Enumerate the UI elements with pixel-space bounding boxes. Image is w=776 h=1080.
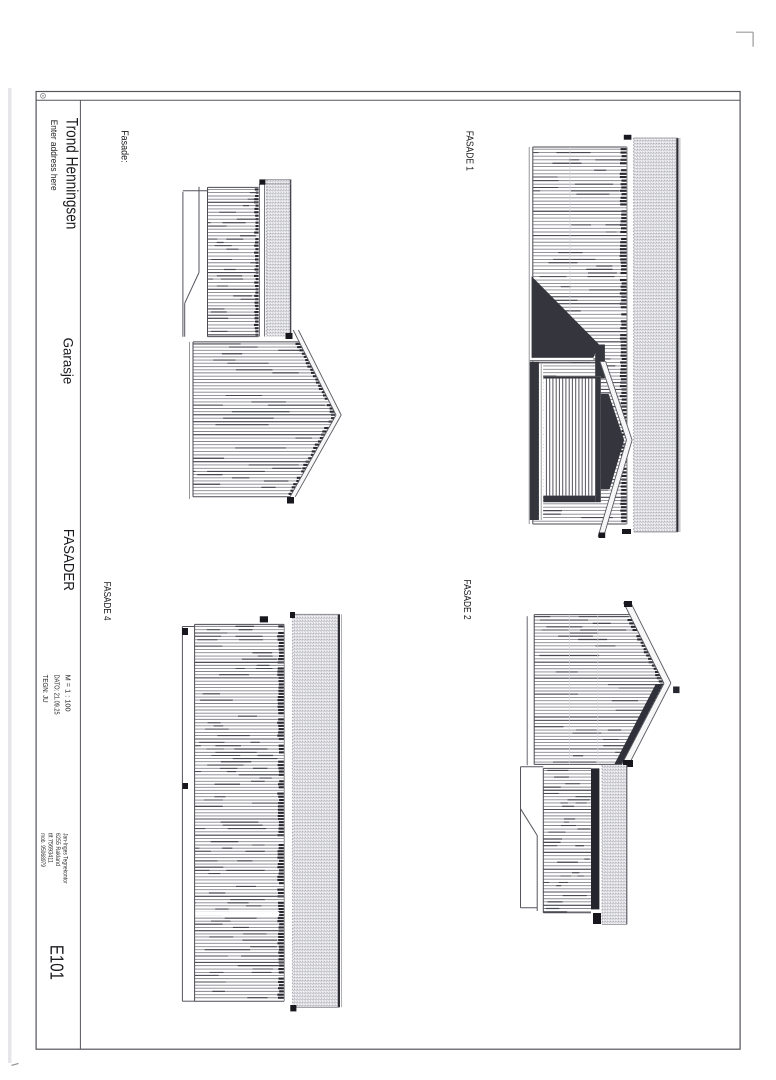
svg-text:Fasade:: Fasade: <box>119 130 130 163</box>
svg-text:mob. 95068979: mob. 95068979 <box>39 833 46 867</box>
svg-text:tlf.75693411: tlf.75693411 <box>46 833 53 863</box>
svg-text:FASADER: FASADER <box>60 529 77 591</box>
svg-text:FASADE 1: FASADE 1 <box>464 131 476 171</box>
svg-text:M = 1 : 100: M = 1 : 100 <box>64 675 73 712</box>
svg-text:E101: E101 <box>46 945 67 980</box>
svg-text:Trond Henningsen: Trond Henningsen <box>63 118 81 230</box>
svg-text:6255 Rakland: 6255 Rakland <box>54 833 61 866</box>
svg-text:Enter address here: Enter address here <box>48 120 59 191</box>
svg-text:FASADE 4: FASADE 4 <box>101 582 113 621</box>
svg-text:DATO: 21.09.25: DATO: 21.09.25 <box>52 675 61 715</box>
svg-text:Garasje: Garasje <box>60 338 76 385</box>
svg-text:TEGN: JU: TEGN: JU <box>41 675 50 703</box>
svg-text:Jan-Inges Tegnekontor: Jan-Inges Tegnekontor <box>61 833 68 884</box>
svg-text:FASADE 2: FASADE 2 <box>461 579 473 619</box>
